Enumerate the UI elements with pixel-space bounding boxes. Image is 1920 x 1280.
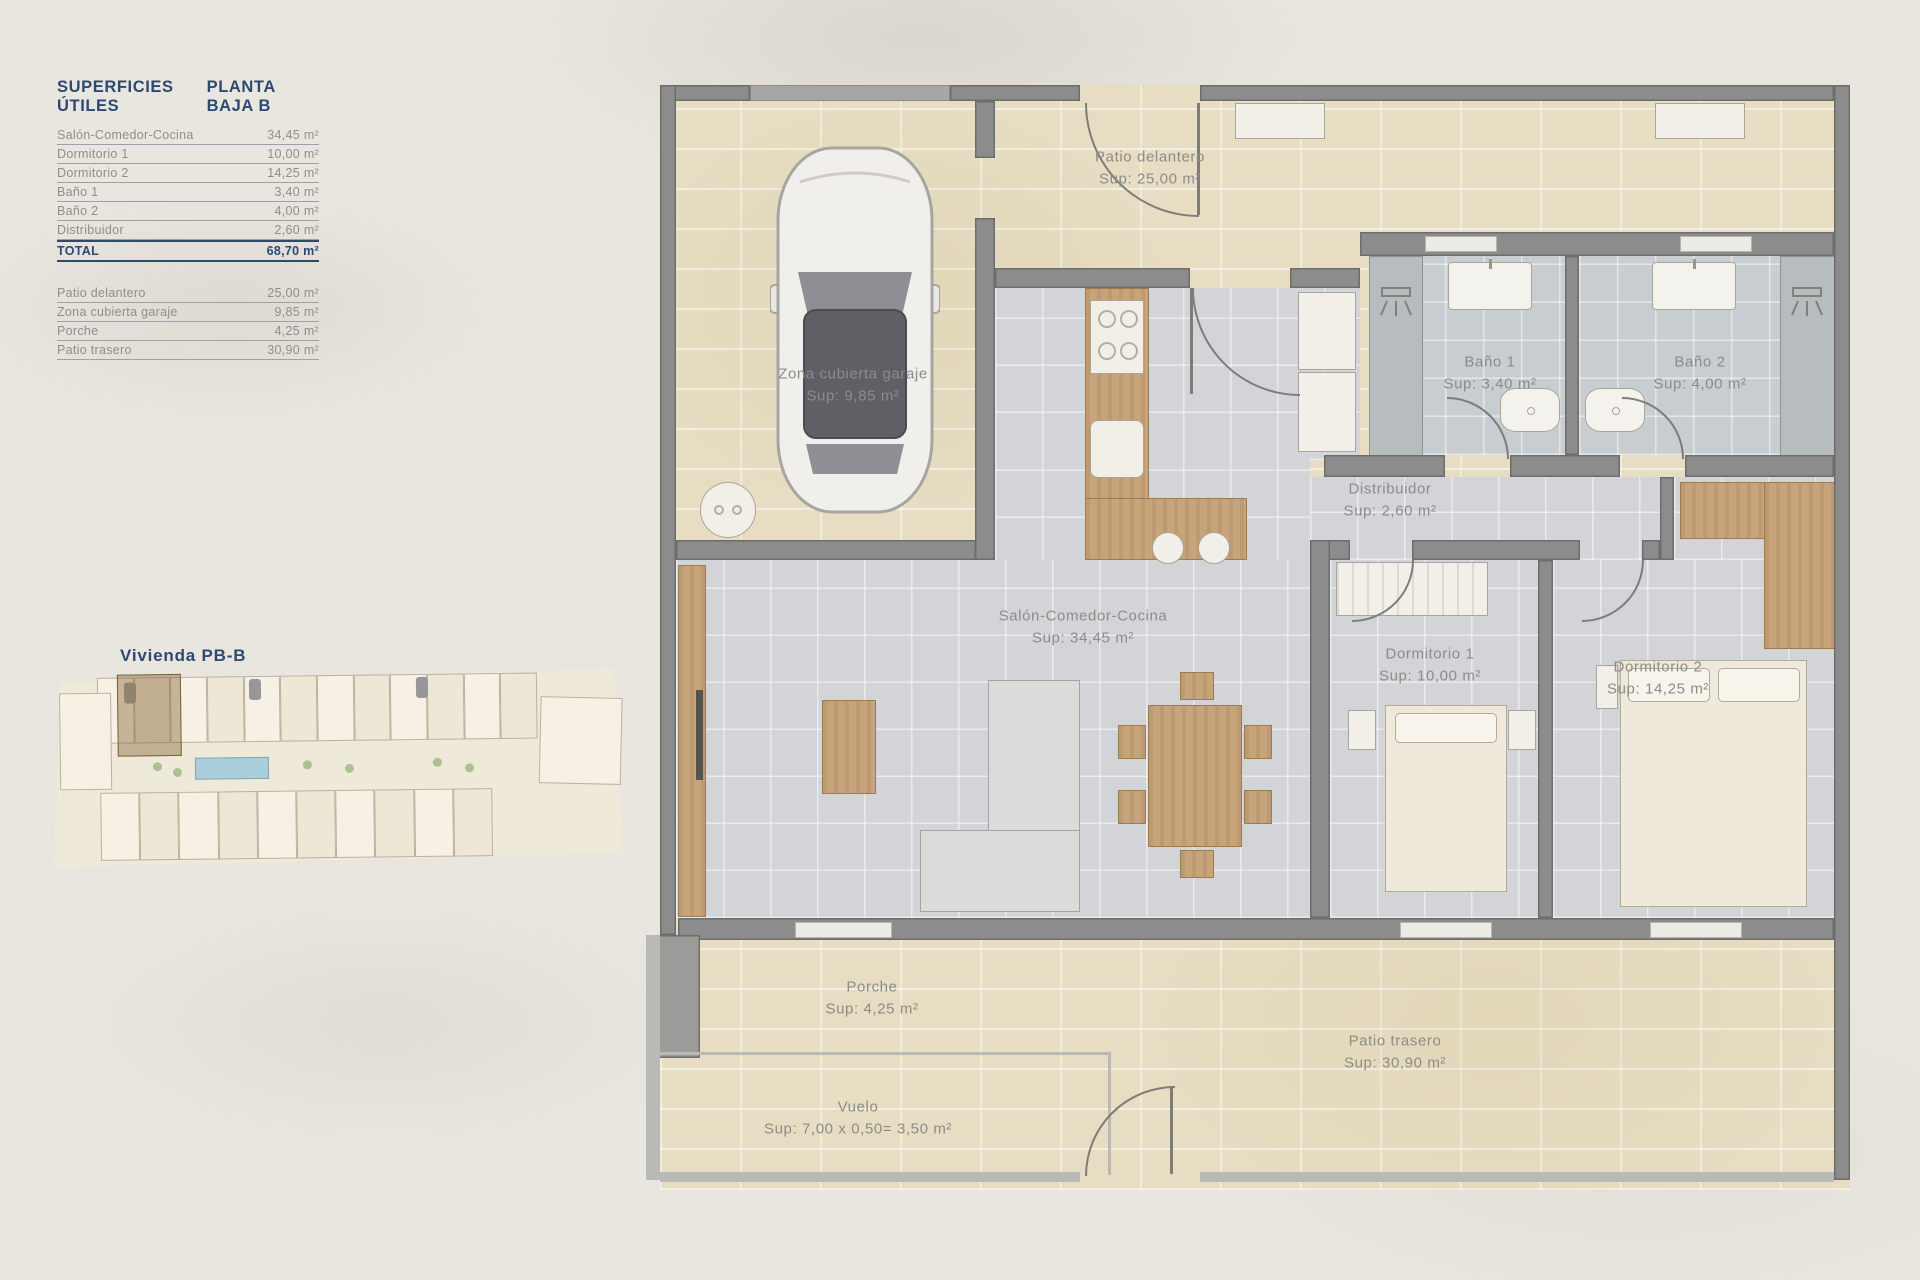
table-row: Dormitorio 110,00 m² [57,145,319,164]
room-label-bano2: Baño 2 Sup: 4,00 m² [1653,351,1746,395]
wall-garage-right [975,218,995,560]
dining-chair [1244,790,1272,824]
bathroom-sink [1448,262,1532,310]
site-plan-unit [427,673,464,739]
site-plan-unit [317,675,354,741]
room-label-dormitorio1: Dormitorio 1 Sup: 10,00 m² [1379,643,1481,687]
table-row: Dormitorio 214,25 m² [57,164,319,183]
room-label-distribuidor: Distribuidor Sup: 2,60 m² [1343,478,1436,522]
site-plan-unit [414,789,454,857]
car-top-view [770,140,940,520]
site-plan-bush [345,764,354,773]
cooktop [1090,300,1144,374]
vuelo-boundary [660,1052,1110,1055]
wall-livingroom-bedroom1 [1310,540,1330,918]
dining-chair [1244,725,1272,759]
site-plan-unit [100,792,140,860]
wall-hall-bedrooms [1412,540,1580,560]
dining-chair [1180,672,1214,700]
table-row: Patio trasero30,90 m² [57,341,319,360]
site-plan-bush [153,762,162,771]
door-leaf [1170,1086,1173,1174]
site-plan-unit [257,791,297,859]
wall-livingroom-top [676,540,976,560]
site-plan-car [416,677,428,698]
dining-chair [1180,850,1214,878]
table-row: Baño 24,00 m² [57,202,319,221]
wall-kitchen-top-stub [1290,268,1360,288]
site-plan-unit [354,674,391,740]
room-label-vuelo: Vuelo Sup: 7,00 x 0,50= 3,50 m² [764,1096,952,1140]
wall-right [1834,85,1850,1180]
kitchen-cabinet [1298,372,1356,452]
dining-chair [1118,725,1146,759]
table-row: Zona cubierta garaje9,85 m² [57,303,319,322]
wall-plot-bottom [1200,1172,1834,1182]
table-subtitle: PLANTA BAJA B [207,78,319,116]
desk-side [1764,482,1836,649]
bathroom-window [1425,236,1497,252]
surfaces-table: SUPERFICIES ÚTILES PLANTA BAJA B Salón-C… [57,78,319,360]
site-plan-unit [453,788,493,856]
bed-pillow [1718,668,1800,702]
wall-top [950,85,1080,101]
site-plan-highlighted-unit [117,674,182,757]
room-label-bano1: Baño 1 Sup: 3,40 m² [1443,351,1536,395]
sofa-chaise [920,830,1080,912]
site-plan-bush [303,760,312,769]
site-plan-thumbnail [44,668,631,873]
table-total-row: TOTAL68,70 m² [57,240,319,262]
ac-unit [1655,103,1745,139]
garage-gate [750,85,950,101]
plot-edge-left [646,935,660,1180]
site-plan-unit [280,675,317,741]
site-plan-bush [465,763,474,772]
nightstand [1508,710,1536,750]
shower-icon [1377,285,1415,321]
wall-kitchen-top [995,268,1190,288]
nightstand [1348,710,1376,750]
table-row: Salón-Comedor-Cocina34,45 m² [57,126,319,145]
floor-plan-page: SUPERFICIES ÚTILES PLANTA BAJA B Salón-C… [0,0,1920,1280]
porch-sliding-door [795,922,892,938]
site-plan-unit-block [59,693,112,791]
bedroom1-window [1400,922,1492,938]
kitchen-sink [1090,420,1144,478]
site-plan-unit [464,673,501,739]
site-plan-unit [296,790,336,858]
room-label-patio-delantero: Patio delantero Sup: 25,00 m² [1095,146,1205,190]
wall-between-bathrooms [1565,256,1579,455]
bathroom-sink [1652,262,1736,310]
wall-below-bathrooms [1685,455,1834,477]
wall-bedroom1-bedroom2 [1538,560,1553,918]
wall-below-bathrooms [1510,455,1620,477]
wall-garage-stub [975,101,995,158]
site-plan-unit [139,792,179,860]
wall-hall-stub [1660,477,1674,560]
site-plan-unit [218,791,258,859]
site-plan-unit [207,676,244,742]
bathroom-window [1680,236,1752,252]
dining-table [1148,705,1242,847]
bed-pillow [1395,713,1497,743]
room-label-dormitorio2: Dormitorio 2 Sup: 14,25 m² [1607,656,1709,700]
wall-left [660,85,676,935]
wall-top [1200,85,1834,101]
kitchen-stool [1198,532,1230,564]
room-label-garaje: Zona cubierta garaje Sup: 9,85 m² [778,363,928,407]
site-plan-unit [500,673,537,739]
site-plan-title: Vivienda PB-B [120,646,246,666]
floor-plan: Patio delantero Sup: 25,00 m² Zona cubie… [660,85,1850,1190]
wall-below-bathrooms [1324,455,1445,477]
site-plan-pool [195,757,269,780]
table-row: Patio delantero25,00 m² [57,284,319,303]
bedroom2-window [1650,922,1742,938]
table-row: Baño 13,40 m² [57,183,319,202]
site-plan-unit-block [539,696,623,785]
site-plan-bush [433,758,442,767]
site-plan-car [249,679,261,700]
site-plan-unit [335,790,375,858]
door-arc [1085,1086,1175,1176]
site-plan-bush [173,768,182,777]
table-title: SUPERFICIES ÚTILES [57,78,207,116]
wall-hall-bedrooms [1642,540,1660,560]
site-plan-unit [179,791,219,859]
room-label-salon: Salón-Comedor-Cocina Sup: 34,45 m² [999,605,1168,649]
tv-screen [696,690,703,780]
garden-table [700,482,756,538]
kitchen-stool [1152,532,1184,564]
table-header: SUPERFICIES ÚTILES PLANTA BAJA B [57,78,319,116]
table-row: Distribuidor2,60 m² [57,221,319,240]
table-row: Porche4,25 m² [57,322,319,341]
door-leaf [1190,288,1193,394]
site-plan-units-bottom [100,788,493,861]
site-plan-unit [375,789,415,857]
fridge [1298,292,1356,370]
dining-chair [1118,790,1146,824]
room-label-porche: Porche Sup: 4,25 m² [825,976,918,1020]
room-label-patio-trasero: Patio trasero Sup: 30,90 m² [1344,1030,1446,1074]
wall-plot-bottom [660,1172,1080,1182]
ac-unit [1235,103,1325,139]
coffee-table [822,700,876,794]
shower-icon [1788,285,1826,321]
